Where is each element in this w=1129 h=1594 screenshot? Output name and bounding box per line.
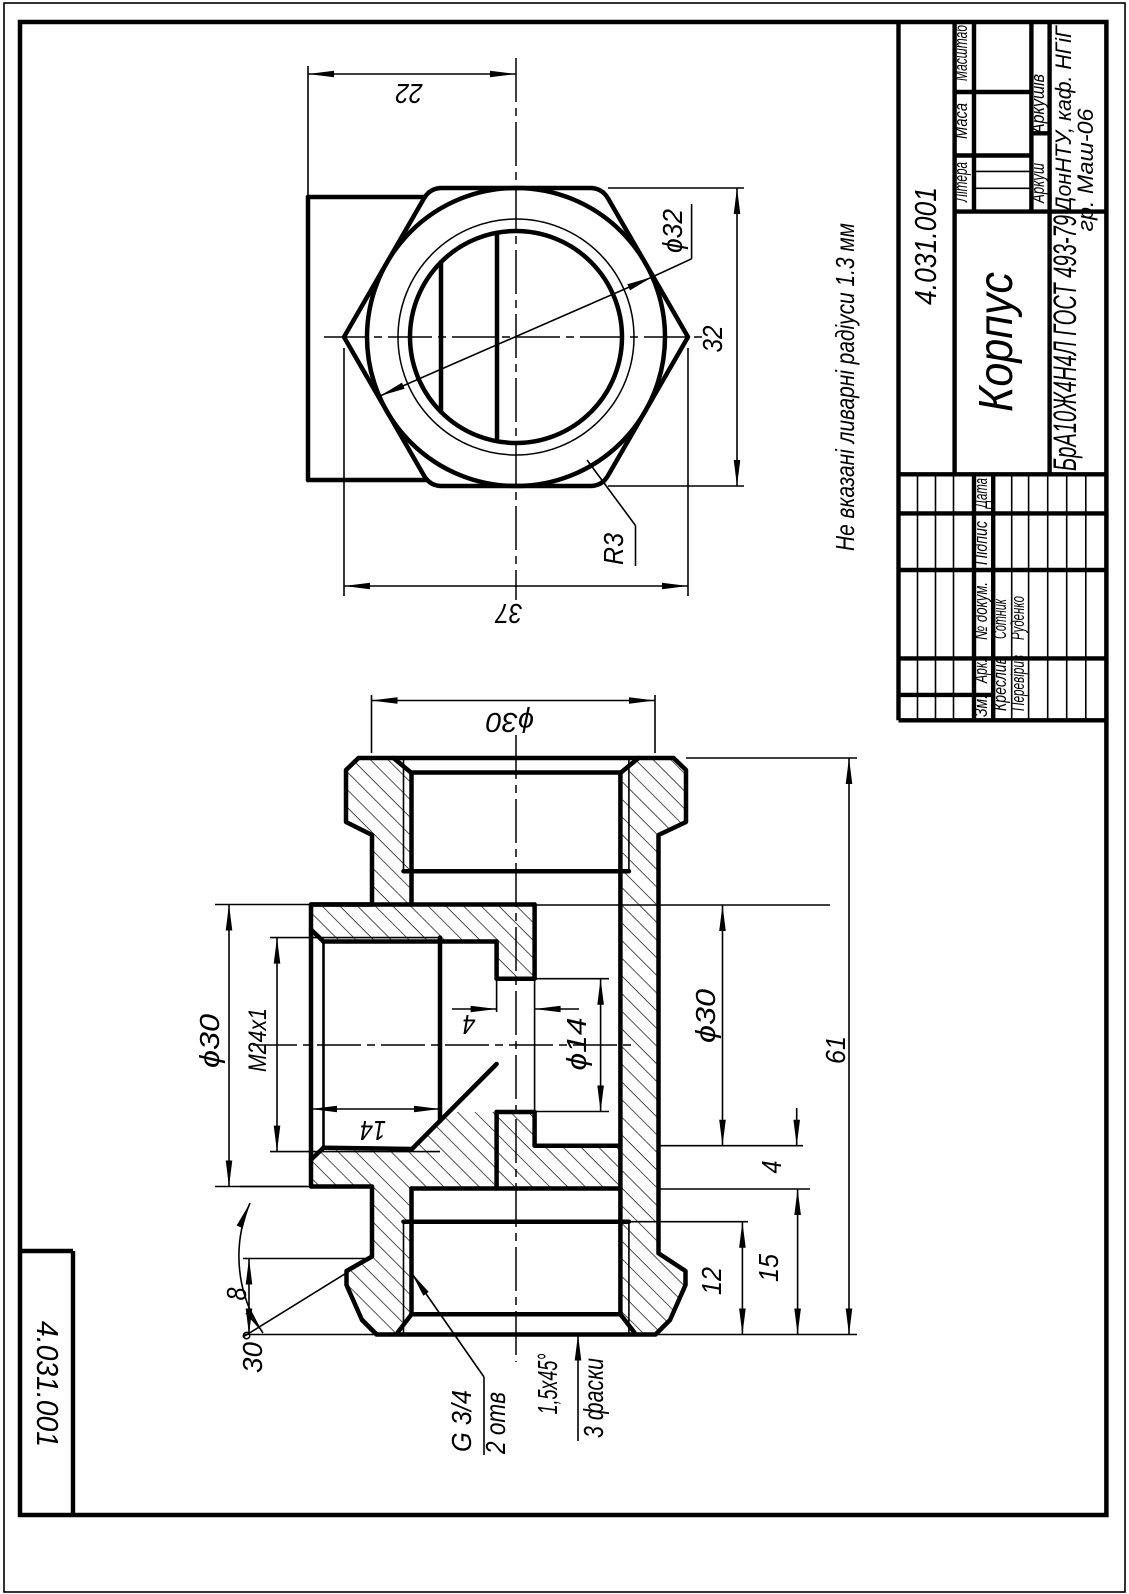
svg-text:30°: 30° [237,1331,268,1373]
svg-text:Маса: Маса [951,103,971,139]
svg-text:4.031.001: 4.031.001 [908,187,943,305]
svg-text:15: 15 [753,1254,784,1282]
svg-text:3 фаски: 3 фаски [578,1358,609,1438]
svg-text:Руденко: Руденко [1008,596,1028,640]
svg-text:Корпус: Корпус [970,272,1023,412]
svg-text:4: 4 [463,1009,476,1040]
svg-text:R3: R3 [598,533,629,565]
svg-text:Зм.: Зм. [971,695,991,717]
svg-text:61: 61 [820,1036,851,1064]
svg-text:4.031.001: 4.031.001 [30,1321,65,1447]
svg-text:37: 37 [494,598,522,629]
svg-text:БрА10Ж4Н4Л ГОСТ 493-79: БрА10Ж4Н4Л ГОСТ 493-79 [1047,215,1083,471]
svg-text:8: 8 [221,1287,252,1300]
svg-text:G 3/4: G 3/4 [446,1390,477,1452]
svg-text:Дата: Дата [971,478,991,509]
svg-text:ϕ14: ϕ14 [561,1018,592,1071]
svg-text:Масштаб: Масштаб [951,24,971,81]
svg-text:Арк.: Арк. [971,659,991,684]
svg-text:M24x1: M24x1 [244,1008,272,1072]
svg-text:Креслив: Креслив [990,657,1010,711]
svg-text:ϕ30: ϕ30 [690,989,721,1043]
svg-text:Перевірив: Перевірив [1008,655,1028,711]
svg-text:4: 4 [756,1161,787,1174]
svg-text:Аркуш: Аркуш [1028,163,1048,204]
svg-text:Підпис: Підпис [971,521,991,565]
svg-text:14: 14 [360,1115,386,1146]
svg-text:22: 22 [395,78,423,109]
svg-text:1,5x45°: 1,5x45° [532,1354,563,1415]
svg-text:ϕ30: ϕ30 [486,707,534,738]
svg-text:ϕ32: ϕ32 [657,209,688,253]
svg-text:2 отв: 2 отв [480,1392,511,1455]
svg-text:гр. Маш-06: гр. Маш-06 [1073,108,1098,232]
svg-text:Сотник: Сотник [990,598,1010,639]
svg-text:Літера: Літера [951,162,971,203]
svg-text:12: 12 [696,1267,727,1295]
svg-text:Аркушів: Аркушів [1028,74,1048,135]
svg-text:Не вказані ливарні радіуси 1.3: Не вказані ливарні радіуси 1.3 мм [830,223,860,551]
svg-text:№ докум.: № докум. [971,582,991,640]
svg-text:ϕ30: ϕ30 [194,1014,225,1068]
svg-text:32: 32 [697,325,728,352]
